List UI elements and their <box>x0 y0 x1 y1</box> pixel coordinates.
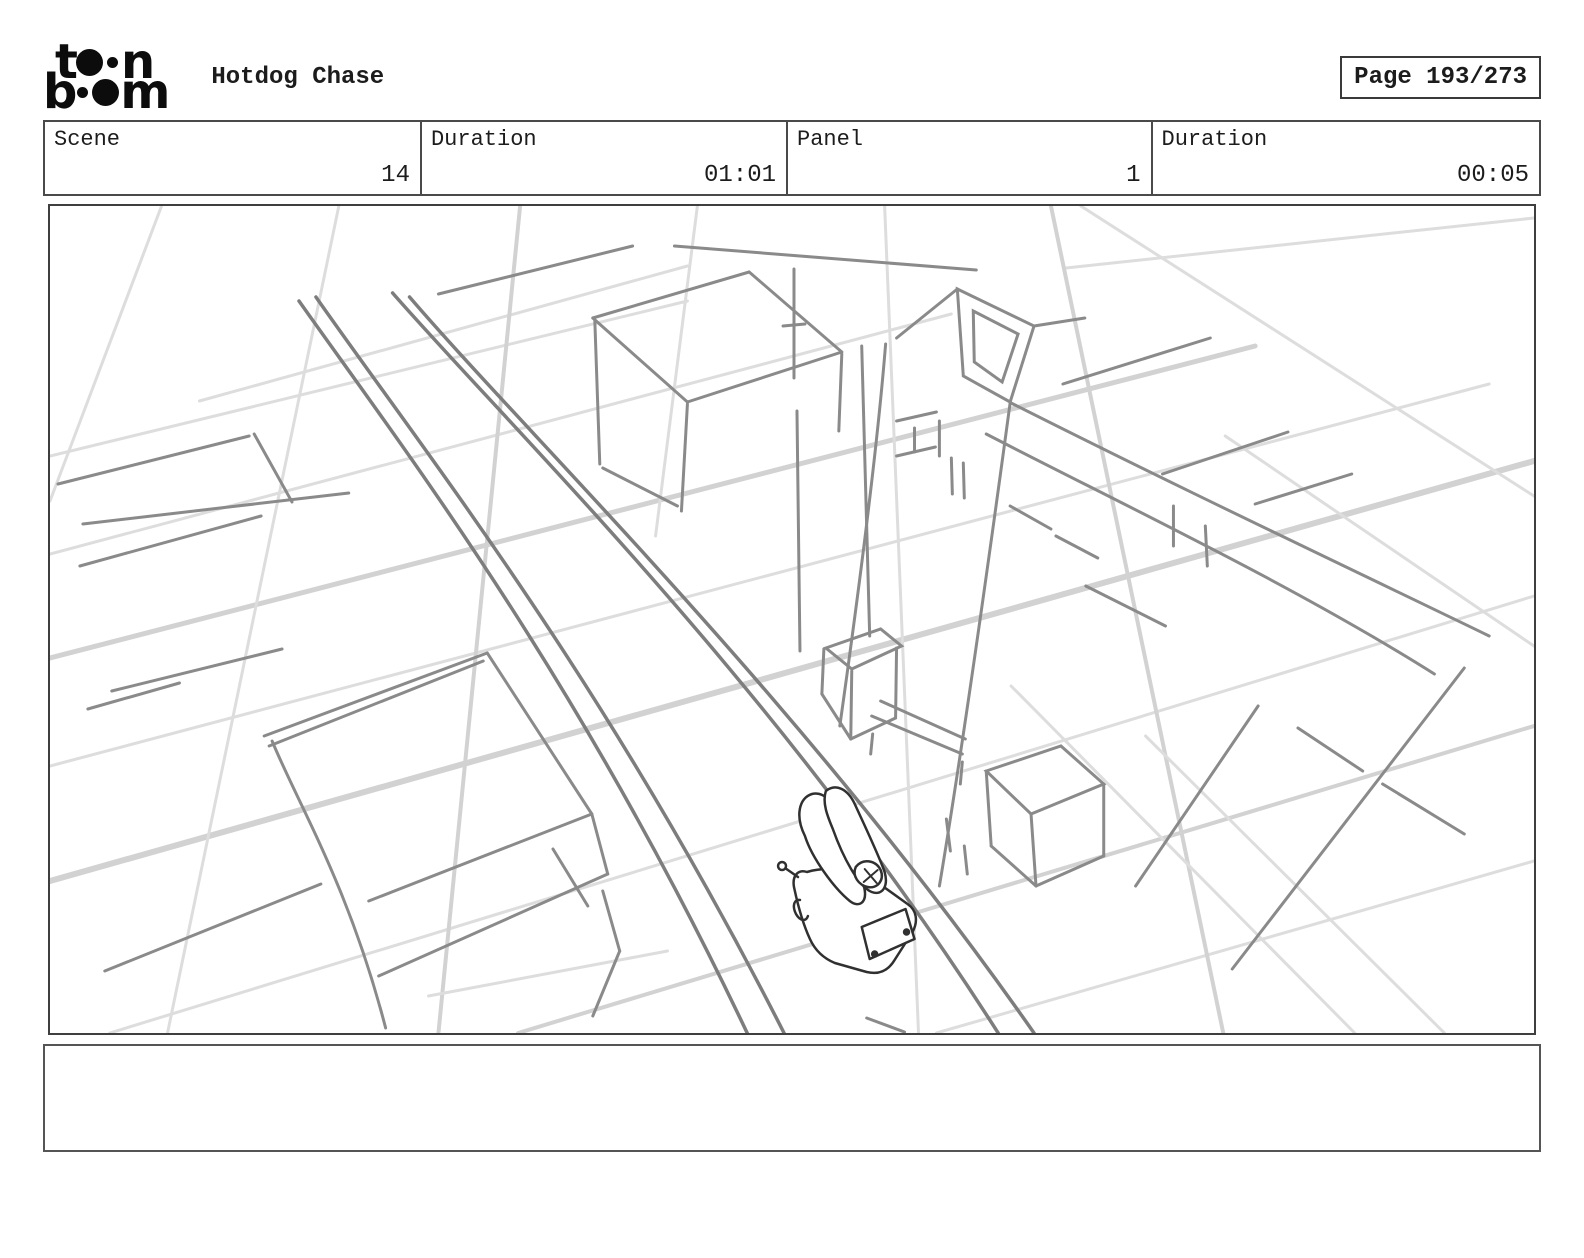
storyboard-panel <box>48 204 1536 1035</box>
grid-lines <box>50 206 1534 1033</box>
scene-duration-value: 01:01 <box>704 162 776 189</box>
scene-value: 14 <box>381 162 410 189</box>
panel-label: Panel <box>797 127 863 152</box>
logo-small-dot-icon <box>77 87 88 98</box>
panel-cell: Panel 1 <box>786 122 1151 194</box>
building-lines <box>58 246 1489 1032</box>
truck-taillight-right <box>904 930 909 935</box>
logo-big-dot-icon <box>92 79 119 106</box>
scene-duration-cell: Duration 01:01 <box>420 122 786 194</box>
storyboard-page: t n b m Hotdog Chase Page 193/273 Scene … <box>0 34 1584 1258</box>
truck-antenna <box>785 868 798 877</box>
info-row: Scene 14 Duration 01:01 Panel 1 Duration… <box>43 120 1541 196</box>
street-lines <box>299 293 1034 1033</box>
truck-mirror <box>778 862 786 870</box>
panel-duration-label: Duration <box>1162 127 1268 152</box>
scene-cell: Scene 14 <box>45 122 420 194</box>
project-title: Hotdog Chase <box>211 64 384 91</box>
panel-duration-cell: Duration 00:05 <box>1151 122 1539 194</box>
toonboom-logo: t n b m <box>43 44 167 111</box>
logo-small-dot-icon <box>107 57 118 68</box>
panel-duration-value: 00:05 <box>1457 162 1529 189</box>
scene-label: Scene <box>54 127 120 152</box>
scene-duration-label: Duration <box>431 127 537 152</box>
logo-letter-b: b <box>43 75 74 109</box>
logo-row-bottom: b m <box>43 74 167 111</box>
truck-taillight-left <box>872 952 877 957</box>
panel-value: 1 <box>1126 162 1140 189</box>
logo-big-dot-icon <box>76 49 103 76</box>
page-number-box: Page 193/273 <box>1340 56 1541 99</box>
storyboard-sketch <box>50 206 1534 1033</box>
page-header: t n b m Hotdog Chase Page 193/273 <box>43 34 1541 120</box>
caption-box <box>43 1044 1541 1152</box>
logo-letter-m: m <box>120 75 167 109</box>
